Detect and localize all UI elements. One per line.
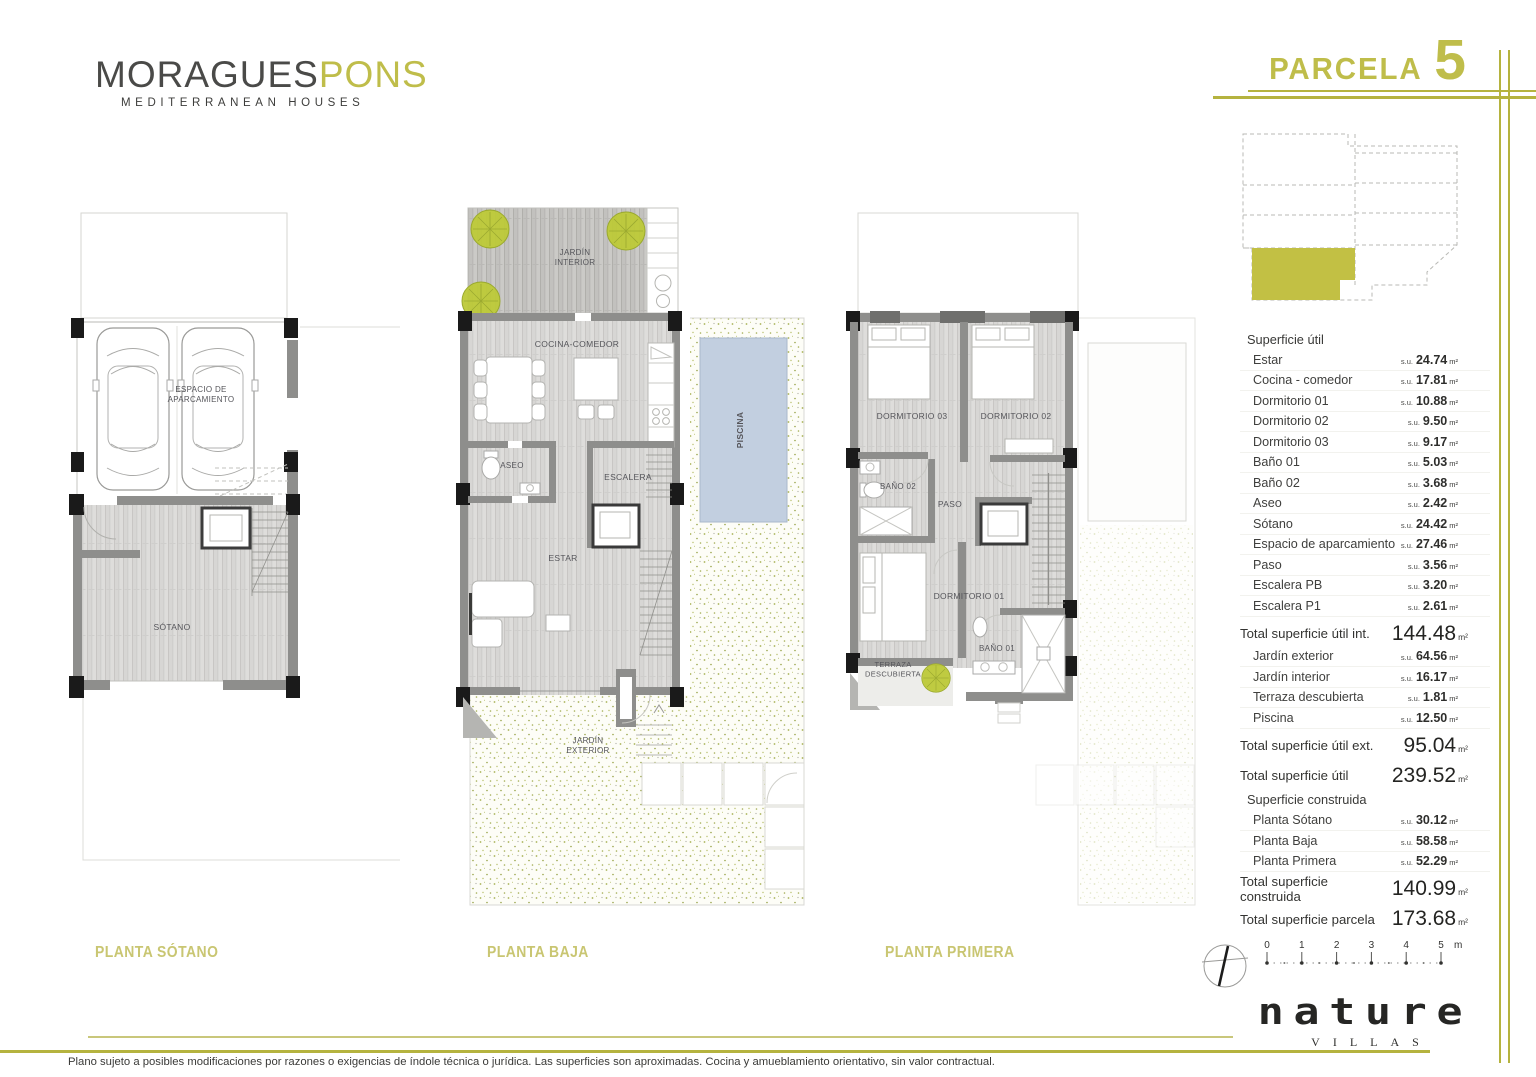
room-label: ESTAR [548,553,577,563]
scale-tick-label: 3 [1369,940,1375,951]
header-rule-bottom [1213,96,1536,99]
row-label: Total superficie útil [1240,768,1348,783]
table-row-item: Jardín exteriors.u.64.56m² [1240,647,1490,668]
table-row-item: Planta Bajas.u.58.58m² [1240,831,1490,852]
table-row-total: Total superficie parcela173.68m² [1240,906,1490,932]
table-row-item: Sótanos.u.24.42m² [1240,514,1490,535]
floorplan-planta-primera: DORMITORIO 03DORMITORIO 02BAÑO 02PASODOR… [840,195,1210,935]
row-label: Aseo [1253,496,1282,510]
floorplan-planta-baja: JARDÍNINTERIORCOCINA-COMEDORASEOESCALERA… [450,195,815,935]
row-value: 173.68m² [1392,907,1468,931]
row-value: s.u.9.17m² [1408,435,1458,449]
table-row-item: Estars.u.24.74m² [1240,350,1490,371]
row-value: s.u.27.46m² [1401,537,1458,551]
table-row-item: Dormitorio 01s.u.10.88m² [1240,391,1490,412]
row-label: Dormitorio 03 [1253,435,1329,449]
scale-tick-label: 0 [1264,940,1270,951]
room-label: PISCINA [735,412,745,449]
row-value: s.u.24.74m² [1401,353,1458,367]
room-label: PASO [938,499,962,509]
row-label: Escalera PB [1253,578,1322,592]
kitchen-strip [647,208,678,313]
disclaimer-text: Plano sujeto a posibles modificaciones p… [68,1056,995,1068]
row-label: Baño 02 [1253,476,1300,490]
right-rule-outer [1499,50,1501,1063]
row-label: Cocina - comedor [1253,373,1352,387]
row-value: 95.04m² [1404,734,1468,758]
room-label: ESCALERA [604,472,652,482]
dining-set [474,357,545,423]
floorplan-planta-sotano: ESPACIO DEAPARCAMIENTOSÓTANO [60,200,400,940]
row-value: s.u.16.17m² [1401,670,1458,684]
table-row-item: Baño 02s.u.3.68m² [1240,473,1490,494]
nature-logo-word: nature [1216,994,1514,1031]
plan-title-primera: PLANTA PRIMERA [885,944,1015,962]
row-value: s.u.2.42m² [1408,496,1458,510]
scale-unit-label: m [1454,940,1462,951]
scale-ticks: 012345m [1264,940,1462,965]
brand-name-secondary: PONS [319,54,428,95]
tree [607,212,645,250]
sotano-room [69,494,300,698]
elevator [202,508,250,548]
row-value: s.u.10.88m² [1401,394,1458,408]
row-label: Baño 01 [1253,455,1300,469]
row-value: s.u.17.81m² [1401,373,1458,387]
table-row-item: Aseos.u.2.42m² [1240,494,1490,515]
right-rule-inner [1508,50,1510,1063]
row-value: 144.48m² [1392,622,1468,646]
row-label: Total superficie parcela [1240,912,1375,927]
table-row-item: Planta Sótanos.u.30.12m² [1240,811,1490,832]
scale-tick-label: 4 [1403,940,1409,951]
row-label: Planta Primera [1253,854,1336,868]
room-label: JARDÍNINTERIOR [555,248,596,267]
garage [71,318,298,496]
row-label: Total superficie útil int. [1240,626,1370,641]
row-value: 140.99m² [1392,877,1468,901]
room-label: SÓTANO [153,622,190,632]
table-row-item: Jardín interiors.u.16.17m² [1240,667,1490,688]
parcel-label: PARCELA [1269,51,1422,87]
site-map [1238,122,1473,317]
row-label: Piscina [1253,711,1294,725]
room-label: COCINA-COMEDOR [535,339,619,349]
room-label: BAÑO 02 [880,482,916,491]
table-row-item: Baño 01s.u.5.03m² [1240,453,1490,474]
brand-tagline: MEDITERRANEAN HOUSES [95,97,428,109]
room-label: ASEO [500,461,523,470]
elevator [981,504,1027,544]
tree [471,210,509,248]
row-label: Planta Baja [1253,834,1317,848]
row-label: Jardín interior [1253,670,1330,684]
row-label: Escalera P1 [1253,599,1321,613]
scale-tick-label: 2 [1334,940,1340,951]
table-row-header: Superficie construida [1240,789,1490,811]
plan-title-sotano: PLANTA SÓTANO [95,944,218,962]
table-row-item: Espacio de aparcamientos.u.27.46m² [1240,535,1490,556]
table-row-item: Escalera P1s.u.2.61m² [1240,596,1490,617]
row-value: s.u.3.56m² [1408,558,1458,572]
row-value: s.u.30.12m² [1401,813,1458,827]
plan-sheet: MORAGUESPONS MEDITERRANEAN HOUSES PARCEL… [0,0,1536,1077]
row-value: s.u.5.03m² [1408,455,1458,469]
row-value: s.u.58.58m² [1401,834,1458,848]
row-label: Terraza descubierta [1253,690,1364,704]
table-row-total: Total superficie construida140.99m² [1240,876,1490,902]
room-label: DORMITORIO 03 [877,411,948,421]
car-1 [93,328,173,490]
table-row-item: Planta Primeras.u.52.29m² [1240,852,1490,873]
table-row-item: Pasos.u.3.56m² [1240,555,1490,576]
row-label: Planta Sótano [1253,813,1332,827]
car-2 [178,328,258,490]
table-row-total: Total superficie útil239.52m² [1240,763,1490,789]
table-row-item: Escalera PBs.u.3.20m² [1240,576,1490,597]
table-row-item: Cocina - comedors.u.17.81m² [1240,371,1490,392]
row-label: Espacio de aparcamiento [1253,537,1395,551]
row-label: Superficie útil [1247,332,1324,347]
scale-tick-label: 5 [1438,940,1444,951]
table-row-item: Dormitorio 03s.u.9.17m² [1240,432,1490,453]
row-label: Jardín exterior [1253,649,1334,663]
row-value: s.u.3.20m² [1408,578,1458,592]
table-row-total: Total superficie útil ext.95.04m² [1240,733,1490,759]
row-label: Total superficie construida [1240,874,1392,904]
row-value: s.u.9.50m² [1408,414,1458,428]
row-label: Total superficie útil ext. [1240,738,1373,753]
nature-villas-logo: nature VILLAS [1227,992,1503,1050]
room-label: ESPACIO DEAPARCAMIENTO [168,385,235,404]
row-value: s.u.1.81m² [1408,690,1458,704]
row-label: Dormitorio 02 [1253,414,1329,428]
table-row-item: Terraza descubiertas.u.1.81m² [1240,688,1490,709]
plan-title-baja: PLANTA BAJA [487,944,589,962]
area-table: Superficie útilEstars.u.24.74m²Cocina - … [1240,328,1490,932]
brand-name: MORAGUESPONS [95,56,428,93]
nature-logo-sub: VILLAS [1227,1035,1503,1050]
kitchen-counter [648,343,674,447]
room-label: JARDÍNEXTERIOR [566,736,609,755]
parcel-header: PARCELA 5 [1261,38,1466,87]
north-compass-icon [1202,945,1248,987]
room-label: DORMITORIO 01 [934,591,1005,601]
row-value: s.u.64.56m² [1401,649,1458,663]
table-row-total: Total superficie útil int.144.48m² [1240,621,1490,647]
site-parcel-highlight [1252,248,1355,300]
header-rule-top [1248,90,1536,92]
footer-rule-thin [88,1036,1233,1038]
table-row-header: Superficie útil [1240,328,1490,350]
room-label: DORMITORIO 02 [981,411,1052,421]
tree [922,664,951,693]
row-value: s.u.52.29m² [1401,854,1458,868]
row-value: s.u.2.61m² [1408,599,1458,613]
table-row-item: Dormitorio 02s.u.9.50m² [1240,412,1490,433]
room-label: BAÑO 01 [979,644,1015,653]
row-value: s.u.12.50m² [1401,711,1458,725]
elevator [593,505,639,547]
scale-bar: 012345m [1195,930,1475,1000]
brand-logo: MORAGUESPONS MEDITERRANEAN HOUSES [95,56,428,109]
row-label: Sótano [1253,517,1293,531]
row-label: Estar [1253,353,1282,367]
footer-rule-thick [0,1050,1430,1053]
parcel-number: 5 [1434,38,1466,84]
row-label: Dormitorio 01 [1253,394,1329,408]
row-label: Paso [1253,558,1282,572]
table-row-item: Piscinas.u.12.50m² [1240,708,1490,729]
row-value: 239.52m² [1392,764,1468,788]
row-value: s.u.3.68m² [1408,476,1458,490]
scale-tick-label: 1 [1299,940,1305,951]
row-value: s.u.24.42m² [1401,517,1458,531]
row-label: Superficie construida [1247,792,1367,807]
